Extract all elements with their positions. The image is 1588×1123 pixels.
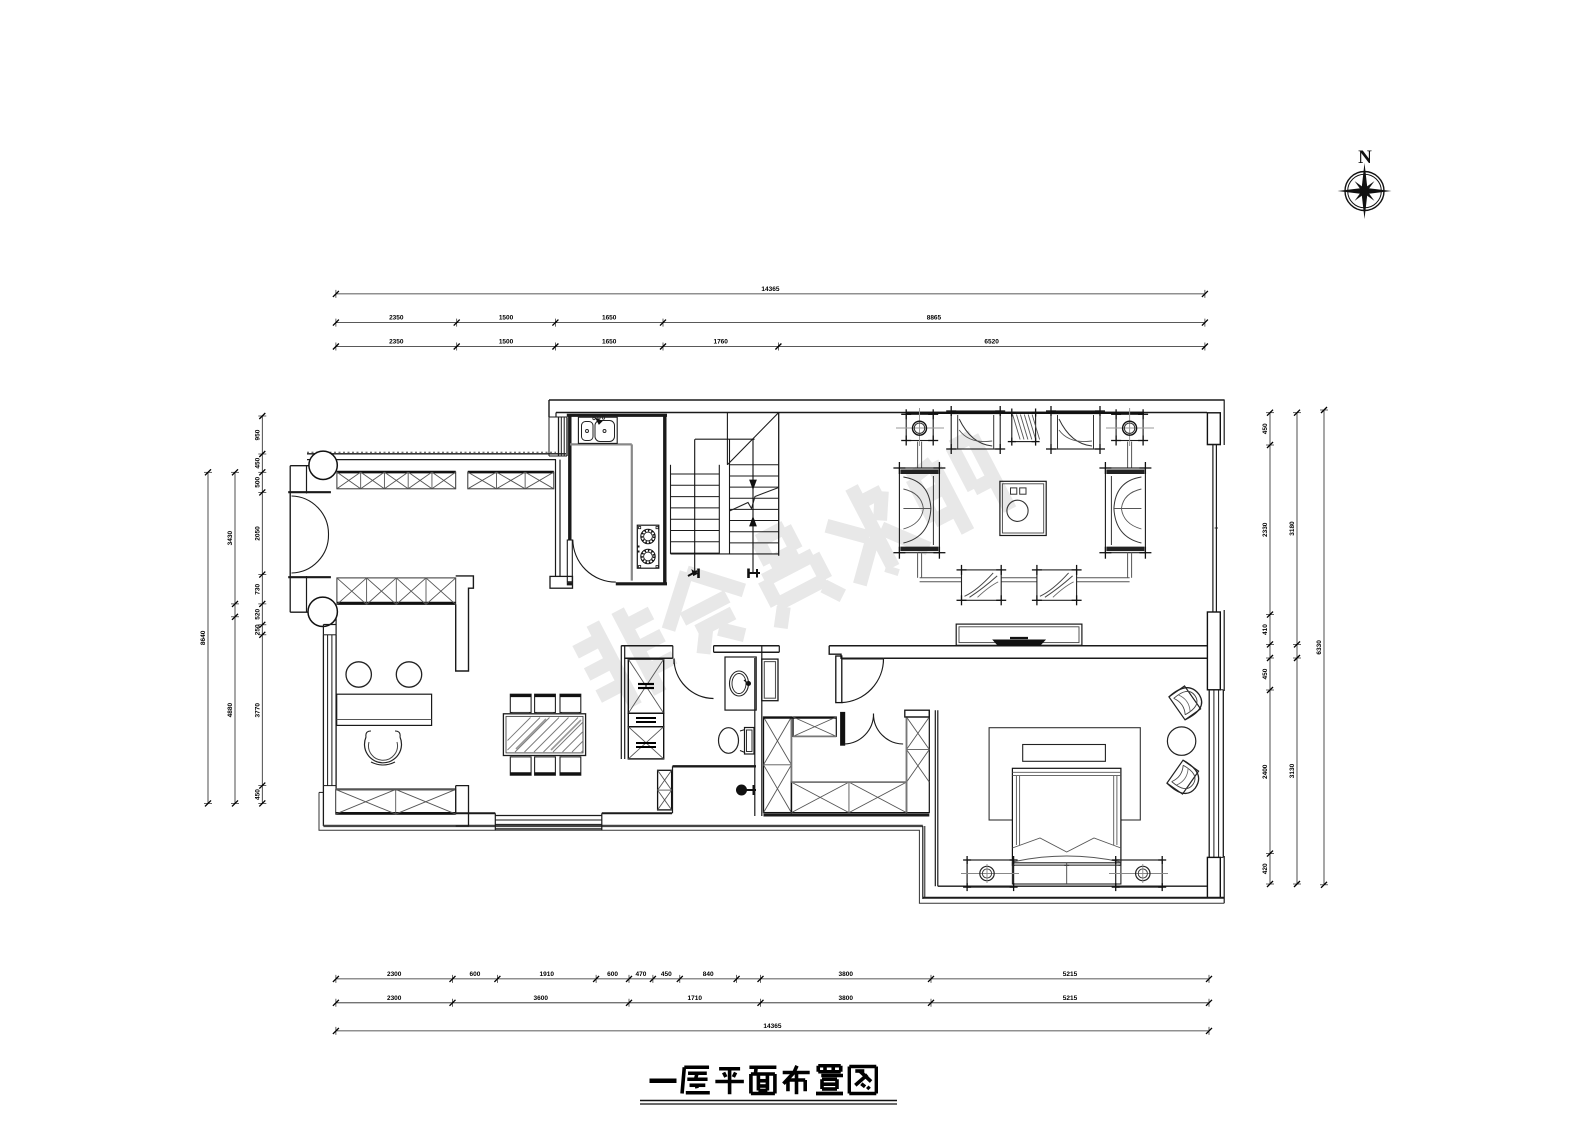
svg-text:3600: 3600 [534,995,549,1002]
svg-text:450: 450 [661,971,672,978]
svg-text:450: 450 [1262,668,1269,679]
svg-text:500: 500 [254,477,261,488]
svg-text:450: 450 [254,789,261,800]
svg-text:2350: 2350 [389,315,404,322]
svg-text:5215: 5215 [1063,971,1078,978]
svg-text:840: 840 [703,971,714,978]
svg-text:4880: 4880 [227,702,234,717]
svg-text:450: 450 [254,457,261,468]
svg-text:1650: 1650 [602,339,617,346]
svg-text:1500: 1500 [499,315,514,322]
svg-text:520: 520 [254,609,261,620]
svg-text:8640: 8640 [200,630,207,645]
svg-text:1910: 1910 [540,971,555,978]
svg-text:3430: 3430 [227,530,234,545]
svg-text:1500: 1500 [499,339,514,346]
svg-text:6330: 6330 [1316,640,1323,655]
svg-text:250: 250 [254,624,261,635]
svg-text:420: 420 [1262,863,1269,874]
svg-text:6520: 6520 [984,339,999,346]
svg-text:3180: 3180 [1289,521,1296,536]
svg-text:3130: 3130 [1289,763,1296,778]
svg-text:14365: 14365 [761,286,779,293]
svg-text:5215: 5215 [1063,995,1078,1002]
svg-text:1760: 1760 [713,339,728,346]
svg-text:1710: 1710 [688,995,703,1002]
svg-text:600: 600 [470,971,481,978]
svg-text:950: 950 [254,429,261,440]
svg-text:2300: 2300 [387,995,402,1002]
svg-text:410: 410 [1262,624,1269,635]
svg-text:3770: 3770 [254,703,261,718]
svg-text:470: 470 [636,971,647,978]
svg-text:N: N [1358,147,1372,168]
svg-text:1650: 1650 [602,315,617,322]
svg-text:2050: 2050 [254,526,261,541]
svg-text:2300: 2300 [387,971,402,978]
svg-text:14365: 14365 [763,1023,781,1030]
svg-text:3800: 3800 [839,995,854,1002]
svg-text:3800: 3800 [839,971,854,978]
svg-text:2330: 2330 [1262,522,1269,537]
svg-text:2350: 2350 [389,339,404,346]
svg-text:450: 450 [1262,423,1269,434]
svg-text:2400: 2400 [1262,764,1269,779]
svg-text:730: 730 [254,583,261,594]
svg-text:8865: 8865 [927,315,942,322]
svg-text:600: 600 [607,971,618,978]
